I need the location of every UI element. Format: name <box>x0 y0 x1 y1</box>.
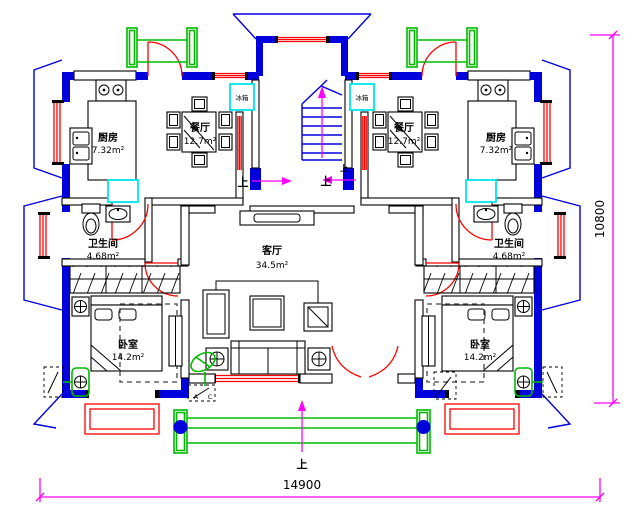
kitchen-cabinet <box>108 180 138 202</box>
fridge-left-label: 冰箱 <box>236 93 250 102</box>
column <box>174 420 188 434</box>
up-label-corridor-right: 上 <box>321 174 332 188</box>
stove-icon <box>96 80 126 101</box>
ac-letter-c: C <box>208 393 213 401</box>
tv-console <box>240 211 314 225</box>
bathroom-right-area: 4.68m² <box>493 252 526 262</box>
ac-letter-a: A <box>194 393 199 401</box>
fridge-right-label: 冰箱 <box>356 93 370 102</box>
bedroom-left-area: 14.2m² <box>112 353 145 363</box>
kitchen-left-name: 厨房 <box>98 131 118 144</box>
bed-headboard <box>442 296 513 305</box>
kitchen-right-area: 7.32m² <box>480 146 513 156</box>
up-label-stair: 上 <box>340 163 348 173</box>
bedroom-left-name: 卧室 <box>118 338 138 351</box>
dining-left-area: 12.7m² <box>184 137 217 147</box>
dining-left-name: 餐厅 <box>189 121 210 134</box>
toilet-tank <box>82 204 100 213</box>
kitchen-right-name: 厨房 <box>486 131 506 144</box>
bedroom-right-name: 卧室 <box>470 338 490 351</box>
bathroom-right-name: 卫生间 <box>494 237 524 250</box>
living-area: 34.5m² <box>256 261 289 271</box>
dining-right-name: 餐厅 <box>393 121 414 134</box>
living-name: 客厅 <box>261 244 282 257</box>
kitchen-left-area: 7.32m² <box>92 146 125 156</box>
toilet-tank <box>504 204 522 213</box>
bathroom-left-name: 卫生间 <box>88 237 118 250</box>
up-label-corridor-left: 上 <box>238 175 249 189</box>
column <box>417 420 431 434</box>
up-label-porch: 上 <box>297 457 308 471</box>
dimension-height-label: 10800 <box>593 200 607 238</box>
stove-icon <box>478 80 508 101</box>
floor-plan-svg: 14900 10800 上 上 上 上 厨房 7.32m² 餐厅 12.7m² … <box>0 0 640 524</box>
bathroom-left-area: 4.68m² <box>87 252 120 262</box>
floor-plan-canvas: 14900 10800 上 上 上 上 厨房 7.32m² 餐厅 12.7m² … <box>0 0 640 524</box>
coffee-table <box>250 296 284 330</box>
bedroom-right-area: 14.2m² <box>464 353 497 363</box>
dining-right-area: 12.7m² <box>388 137 421 147</box>
kitchen-cabinet <box>466 180 496 202</box>
dimension-width-label: 14900 <box>283 478 321 492</box>
